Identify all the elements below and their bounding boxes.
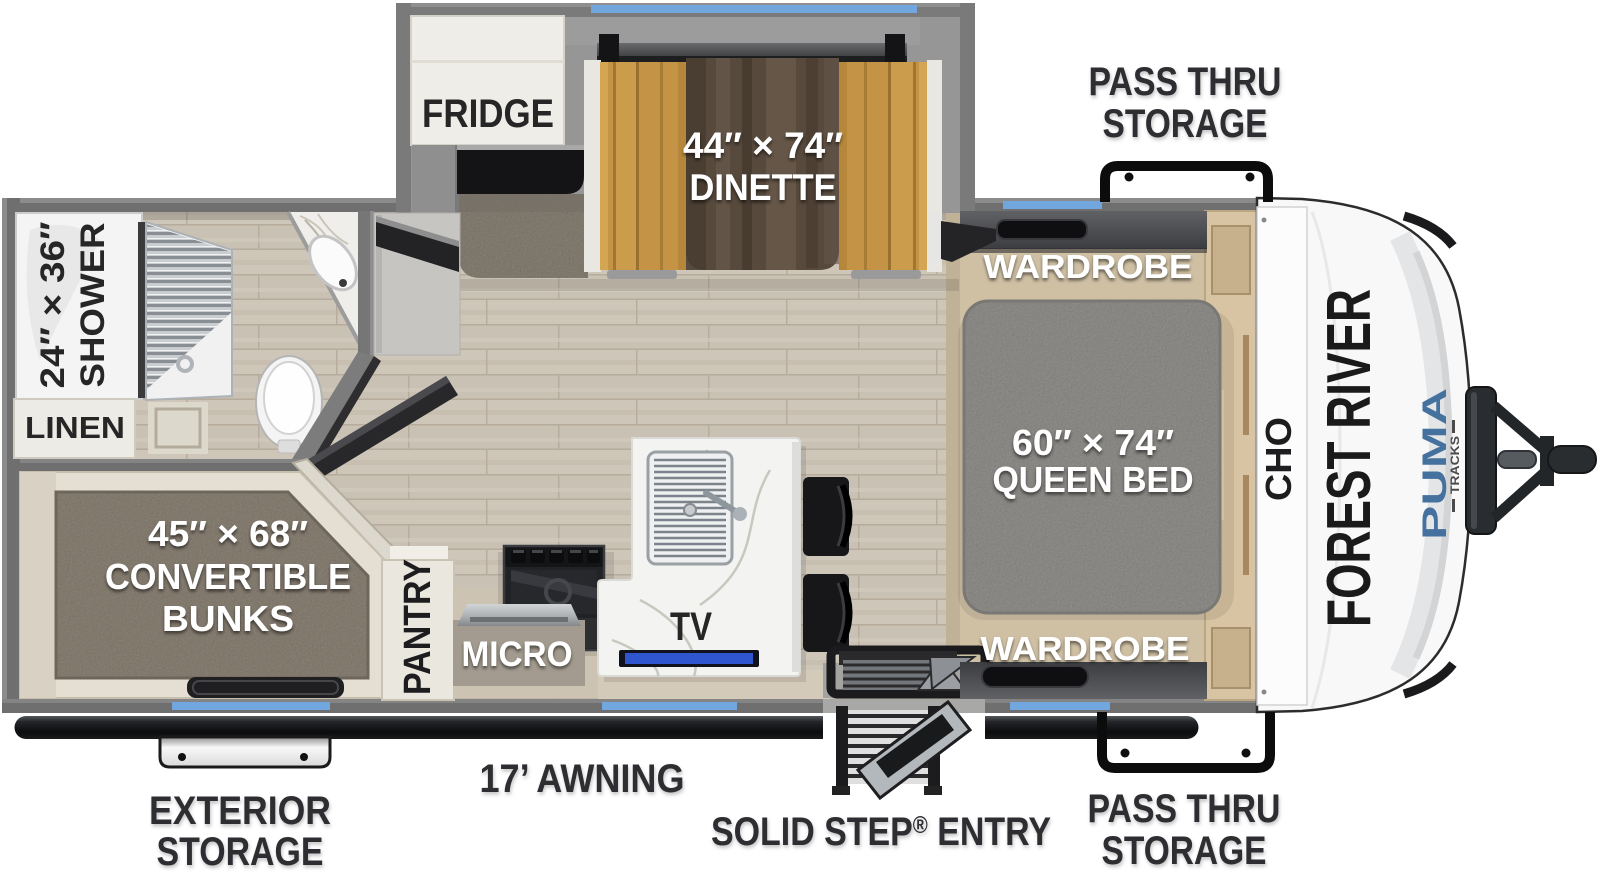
svg-text:44″ × 74″: 44″ × 74″ <box>683 125 843 166</box>
svg-text:WARDROBE: WARDROBE <box>984 248 1193 285</box>
svg-text:DINETTE: DINETTE <box>690 167 837 208</box>
svg-text:QUEEN BED: QUEEN BED <box>993 459 1194 500</box>
svg-text:LINEN: LINEN <box>25 410 125 445</box>
svg-text:STORAGE: STORAGE <box>1102 829 1267 873</box>
svg-text:FOREST RIVER: FOREST RIVER <box>1315 289 1384 627</box>
svg-text:STORAGE: STORAGE <box>1103 102 1268 146</box>
svg-text:CONVERTIBLE: CONVERTIBLE <box>105 556 351 597</box>
svg-text:EXTERIOR: EXTERIOR <box>149 789 331 833</box>
svg-text:WARDROBE: WARDROBE <box>981 630 1190 667</box>
svg-text:FRIDGE: FRIDGE <box>422 92 554 136</box>
svg-text:PANTRY: PANTRY <box>397 559 439 695</box>
svg-text:TV: TV <box>670 605 712 649</box>
svg-text:24″ × 36″: 24″ × 36″ <box>34 222 72 389</box>
svg-text:SHOWER: SHOWER <box>74 223 112 388</box>
svg-text:PASS THRU: PASS THRU <box>1089 60 1282 104</box>
svg-text:60″ × 74″: 60″ × 74″ <box>1012 422 1174 463</box>
svg-text:STORAGE: STORAGE <box>157 830 324 874</box>
svg-text:17’ AWNING: 17’ AWNING <box>480 757 685 801</box>
svg-text:45″ × 68″: 45″ × 68″ <box>148 513 308 554</box>
svg-text:PASS THRU: PASS THRU <box>1088 787 1281 831</box>
svg-text:TRACKS: TRACKS <box>1448 436 1462 494</box>
svg-text:SOLID STEP® ENTRY: SOLID STEP® ENTRY <box>711 810 1051 854</box>
svg-text:CHO: CHO <box>1258 417 1299 501</box>
svg-text:MICRO: MICRO <box>462 635 573 674</box>
svg-text:BUNKS: BUNKS <box>162 598 294 639</box>
